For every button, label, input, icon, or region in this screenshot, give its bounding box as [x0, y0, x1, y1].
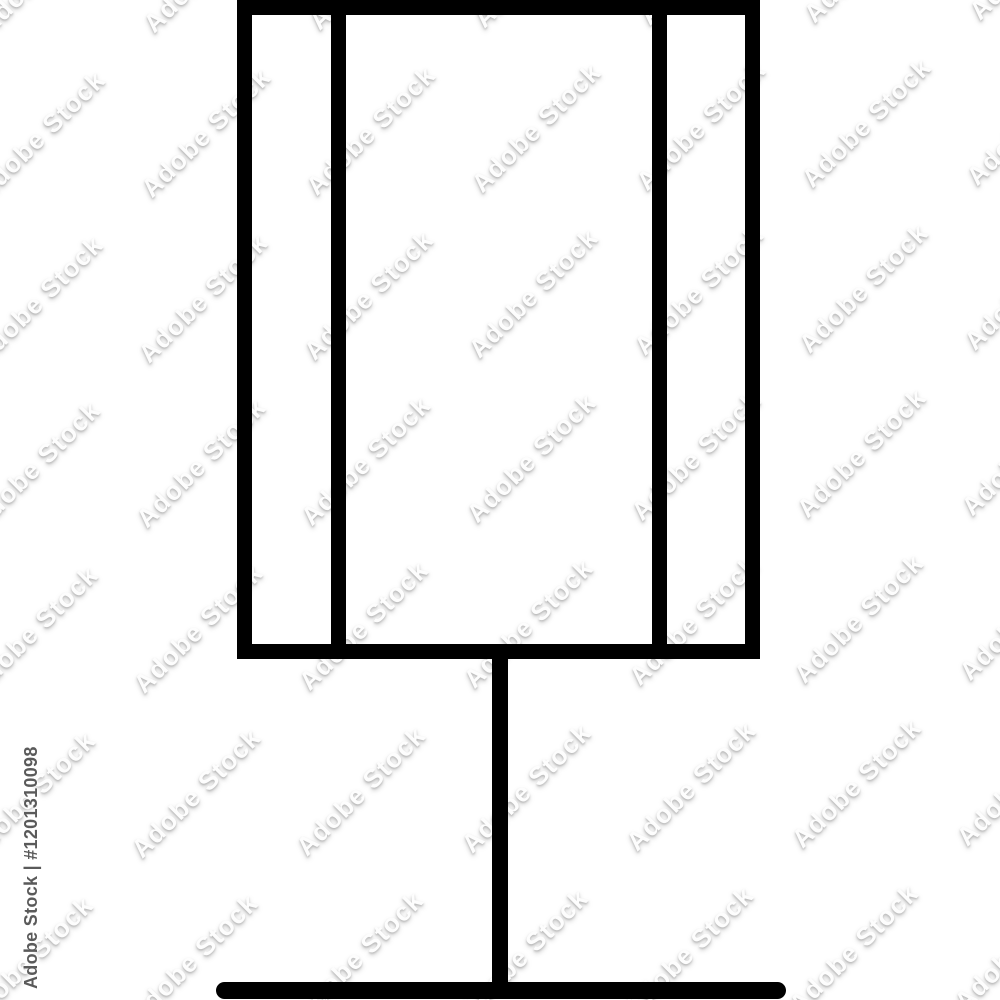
- board-right-divider-line: [652, 15, 667, 644]
- stock-image-canvas: Adobe StockAdobe StockAdobe StockAdobe S…: [0, 0, 1000, 1000]
- sign-board-frame: [237, 0, 760, 659]
- sign-base: [216, 982, 786, 999]
- watermark-credit-text: Adobe Stock | #1201310098: [21, 746, 42, 989]
- sign-pole: [492, 655, 508, 985]
- sign-board-icon: [0, 0, 1000, 1000]
- board-left-divider-line: [331, 15, 346, 644]
